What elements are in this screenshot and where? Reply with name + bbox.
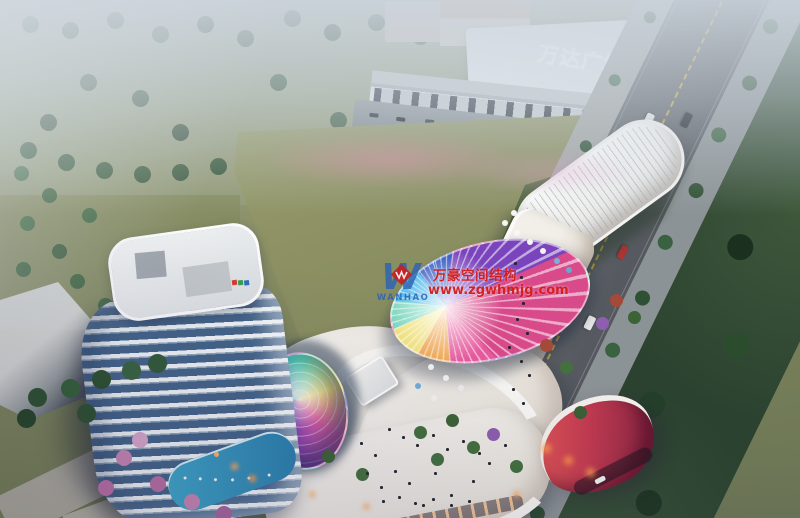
distant-trees <box>22 16 39 33</box>
terrace-trees <box>414 426 427 439</box>
parked-cars <box>369 113 378 118</box>
blossom-trees <box>116 450 132 466</box>
aerial-rendering: 万达广场 <box>0 0 800 518</box>
storefront-glow-lights <box>214 452 219 457</box>
tower-logo <box>232 280 238 286</box>
plaza-umbrellas <box>428 364 434 370</box>
car <box>583 315 596 331</box>
roof-core <box>182 261 232 297</box>
path-people <box>398 496 401 499</box>
watermark-url-text: www.zgwhmjg.com <box>428 283 569 298</box>
roof-core <box>135 251 167 280</box>
roadside-trees <box>14 166 29 181</box>
wanhao-w-logo: W <box>380 258 428 298</box>
plaza-people <box>388 428 391 431</box>
terrace-umbrellas <box>502 220 508 226</box>
watermark-logo-text: WANHAO <box>374 293 432 303</box>
pool-loungers <box>183 476 187 480</box>
watermark-company-text: 万豪空间结构 <box>433 264 517 284</box>
warehouse-trees <box>28 388 47 407</box>
car <box>680 112 694 129</box>
